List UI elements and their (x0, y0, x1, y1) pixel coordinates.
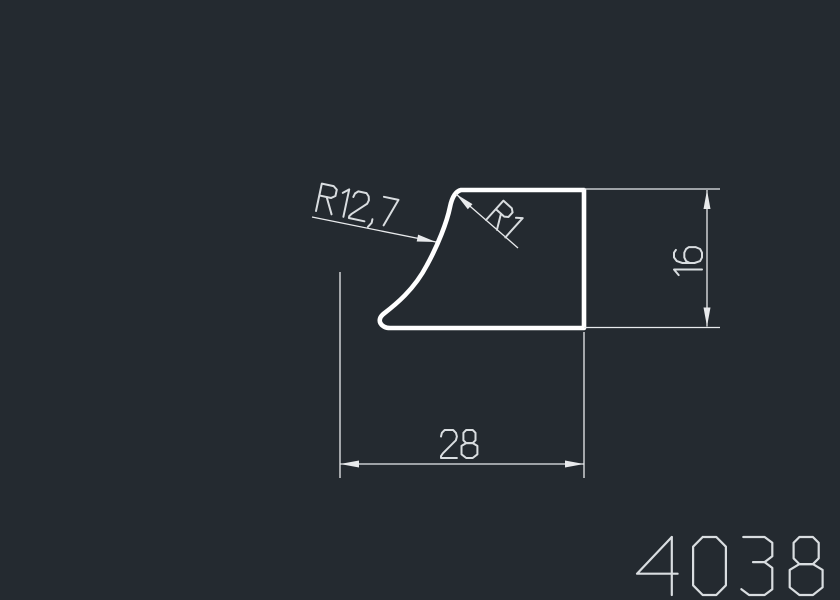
height-dimension-text (674, 247, 702, 275)
radius-large-text (315, 184, 398, 232)
cad-drawing-canvas (0, 0, 840, 600)
radius-small-text (486, 201, 523, 238)
width-arrow-right (565, 461, 584, 468)
radius-small-callout (456, 194, 523, 248)
width-dimension-text (441, 430, 477, 458)
width-dimension (340, 272, 584, 478)
height-arrow-top (704, 190, 711, 209)
width-arrow-left (340, 461, 359, 468)
height-dimension (584, 189, 720, 328)
radius-large-arrow (417, 235, 436, 242)
part-number-text (637, 537, 823, 595)
profile-outline (380, 190, 584, 328)
radius-large-callout (312, 184, 436, 242)
height-arrow-bottom (704, 308, 711, 327)
